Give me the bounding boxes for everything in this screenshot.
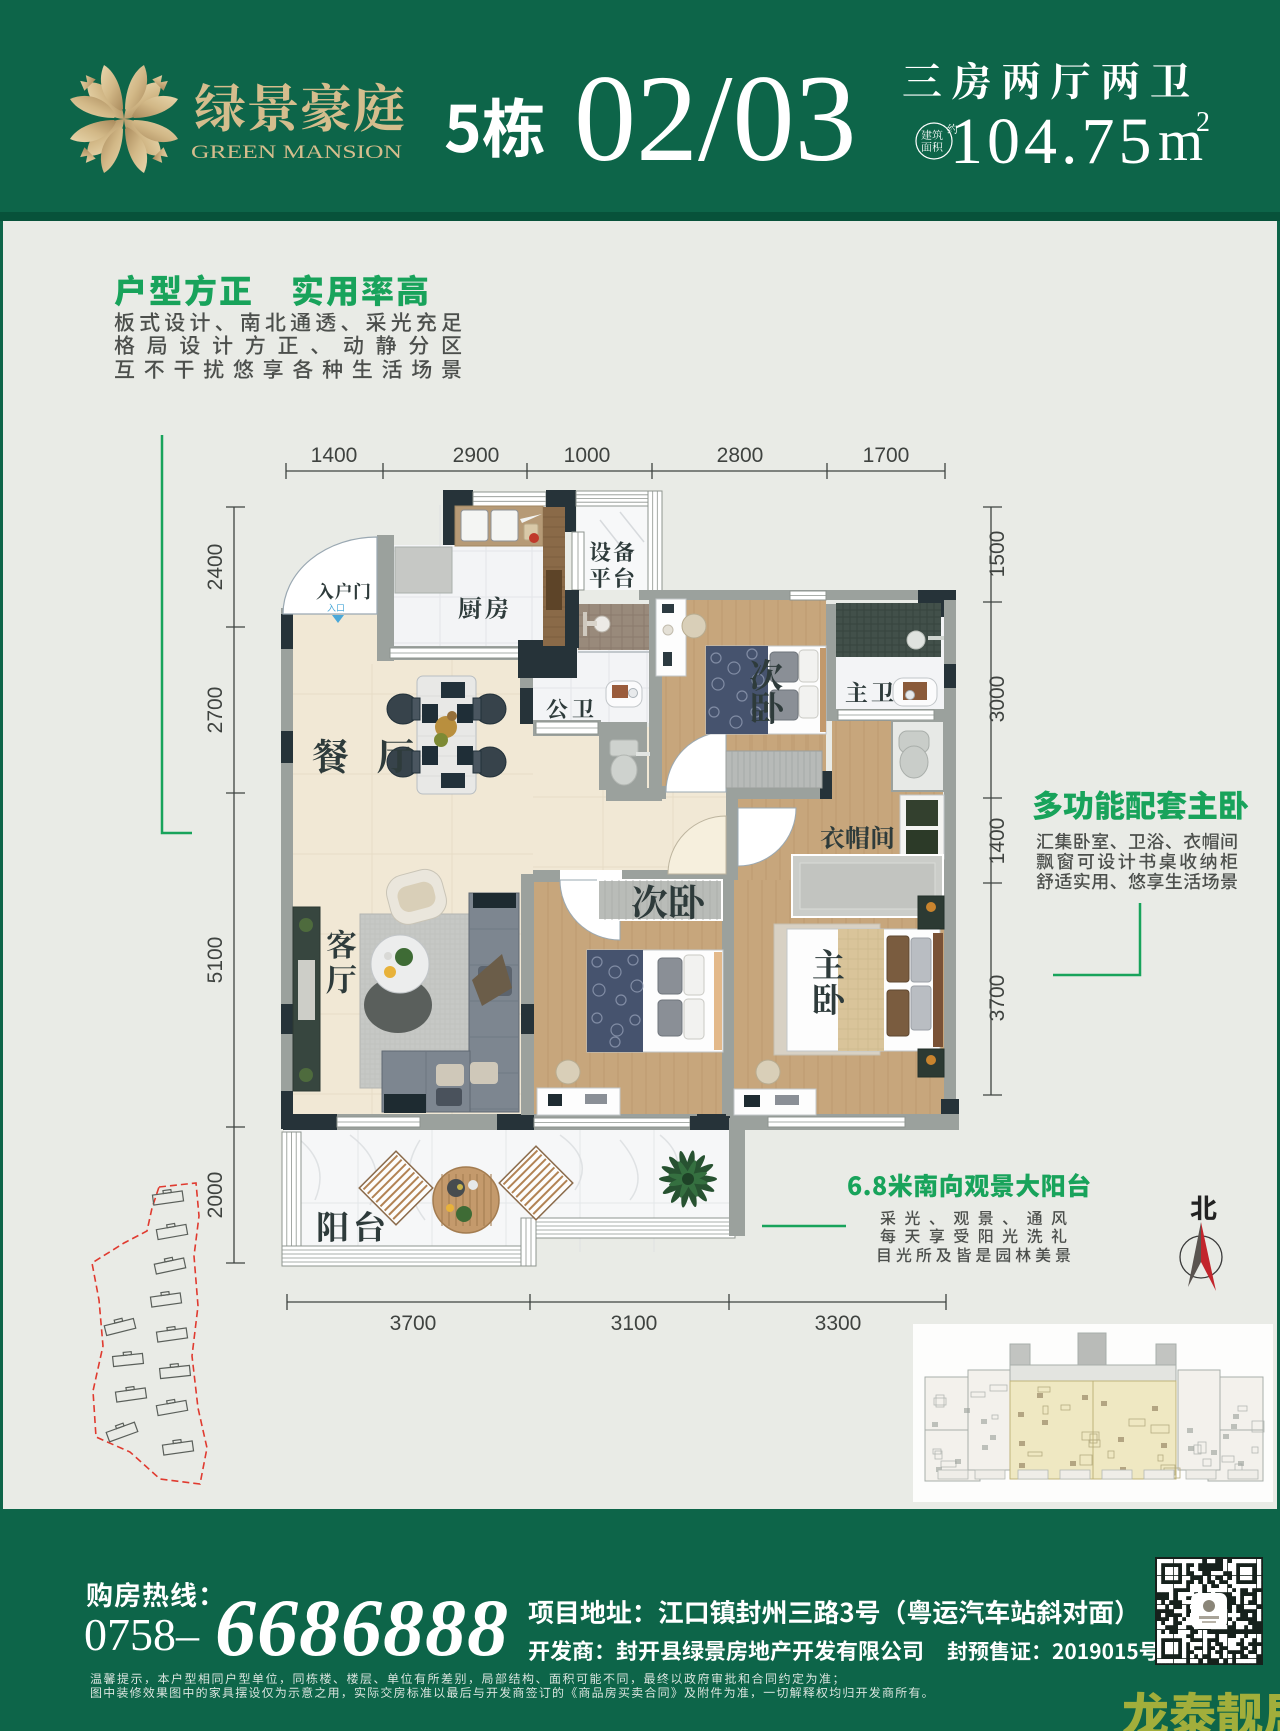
svg-text:2400: 2400 [204, 544, 227, 591]
svg-text:2800: 2800 [717, 444, 764, 467]
svg-text:3700: 3700 [390, 1312, 437, 1335]
svg-text:104.75: 104.75 [950, 105, 1156, 178]
svg-text:1700: 1700 [863, 444, 910, 467]
svg-text:3300: 3300 [815, 1312, 862, 1335]
svg-text:2700: 2700 [204, 687, 227, 734]
svg-text:0758–: 0758– [84, 1609, 200, 1660]
svg-text:6686888: 6686888 [215, 1582, 509, 1673]
svg-text:3100: 3100 [611, 1312, 658, 1335]
svg-text:5100: 5100 [204, 937, 227, 984]
svg-text:GREEN MANSION: GREEN MANSION [191, 142, 402, 163]
svg-text:02/03: 02/03 [574, 50, 856, 187]
svg-text:3000: 3000 [986, 676, 1009, 723]
svg-text:1400: 1400 [311, 444, 358, 467]
svg-text:2900: 2900 [453, 444, 500, 467]
svg-text:2000: 2000 [204, 1172, 227, 1219]
svg-text:1400: 1400 [986, 818, 1009, 865]
svg-text:2: 2 [1196, 107, 1210, 138]
svg-text:3700: 3700 [986, 975, 1009, 1022]
svg-text:1000: 1000 [564, 444, 611, 467]
svg-text:1500: 1500 [986, 531, 1009, 578]
